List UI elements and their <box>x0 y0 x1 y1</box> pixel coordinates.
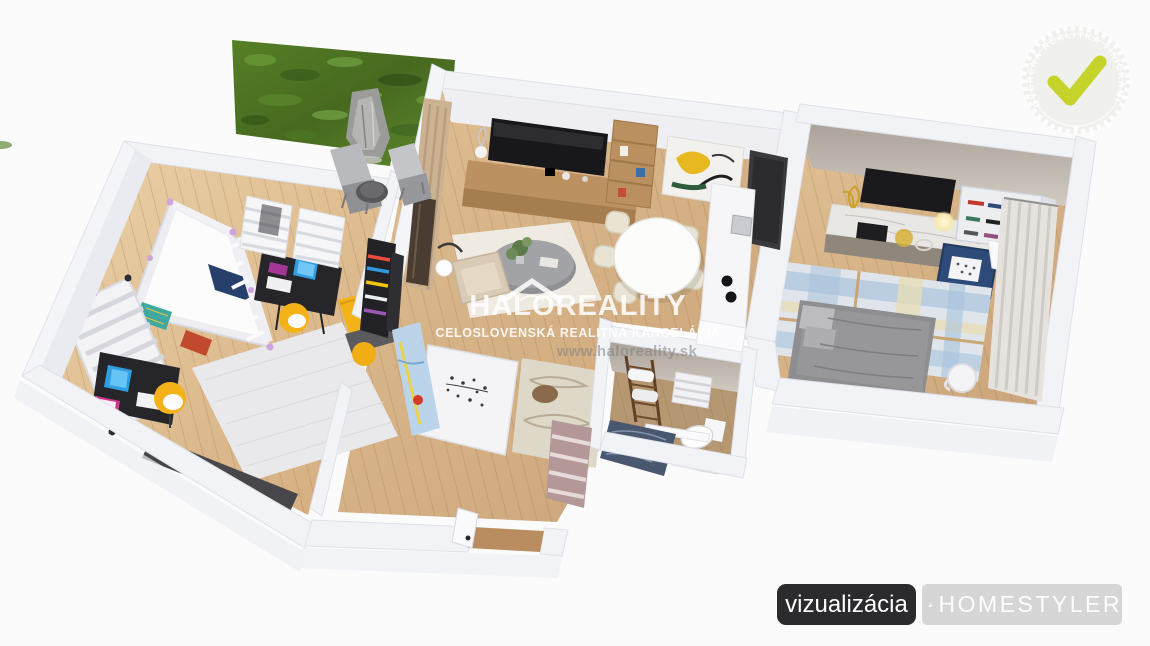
visualization-label-text: vizualizácia <box>785 591 908 619</box>
glow-lamp <box>933 211 955 233</box>
layers-icon <box>928 589 933 621</box>
shoe-bench <box>546 420 592 508</box>
green-wall-panel <box>0 40 455 166</box>
homestyler-brand-text: HOMESTYLER <box>939 591 1122 618</box>
cooktop-burner <box>722 276 733 287</box>
floorplan-3d-render <box>0 0 1150 646</box>
verified-badge: OVERENÁ REALITKA TISÍCKAMI KLIENTOV ★ <box>1014 18 1138 142</box>
visualization-label[interactable]: vizualizácia <box>777 584 916 625</box>
kids-desk-chair-upper <box>279 303 309 333</box>
entry-threshold <box>468 527 544 552</box>
paper-lamp <box>436 260 452 276</box>
sink <box>731 215 752 236</box>
towel-radiator <box>672 372 712 408</box>
homestyler-brand-button[interactable]: HOMESTYLER <box>922 584 1122 625</box>
cooktop-burner <box>726 292 737 303</box>
badge-star-icon: ★ <box>1072 123 1081 134</box>
wood-shelf <box>606 120 658 208</box>
real-estate-visualization: HALOREALITY CELOSLOVENSKÁ REALITNÁ KANCE… <box>0 0 1150 646</box>
